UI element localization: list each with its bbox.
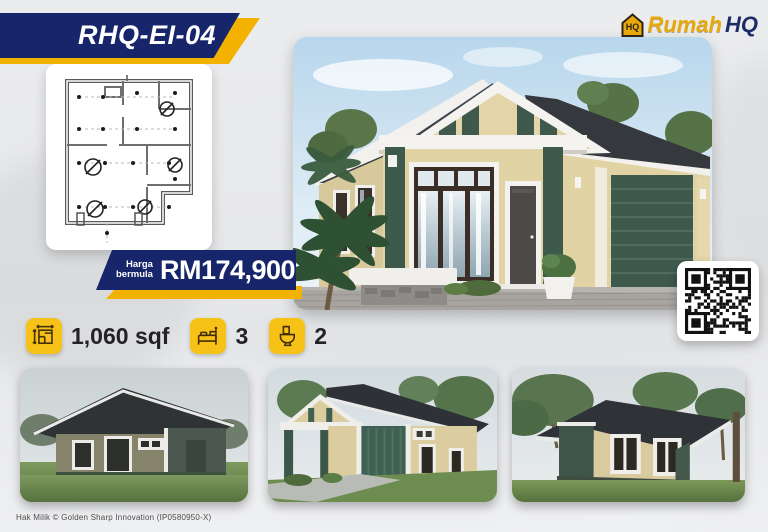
house-logo-icon: HQ — [621, 13, 644, 38]
flyer-canvas: RHQ-EI-04 HQ Rumah HQ — [0, 0, 768, 532]
brand-name-primary: Rumah — [647, 12, 722, 38]
thumbnail-front-left-view[interactable] — [268, 368, 497, 502]
bedroom-count: 3 — [235, 323, 248, 350]
specs-row: 1,060 sqf 3 — [26, 316, 327, 356]
bed-icon — [190, 318, 226, 354]
brand-name-secondary: HQ — [725, 12, 758, 38]
price-value: RM174,900 — [160, 255, 295, 286]
model-badge: RHQ-EI-04 — [0, 13, 240, 58]
thumbnail-rear-view[interactable] — [20, 368, 248, 502]
area-value: 1,060 sqf — [71, 323, 169, 350]
floor-plan-dimensions-icon — [26, 318, 62, 354]
svg-text:HQ: HQ — [626, 22, 640, 32]
qr-code-pattern — [685, 268, 751, 334]
toilet-icon — [269, 318, 305, 354]
qr-code[interactable] — [677, 261, 759, 341]
floor-plan-drawing — [49, 67, 209, 247]
copyright-text: Hak Milik © Golden Sharp Innovation (IP0… — [16, 513, 211, 522]
floor-plan-card — [46, 64, 212, 250]
price-label: Harga bermula — [116, 260, 153, 281]
price-badge-panel: Harga bermula RM174,900 — [96, 250, 296, 290]
main-house-photo[interactable] — [293, 37, 712, 310]
thumbnail-side-view[interactable] — [512, 368, 745, 502]
bathroom-count: 2 — [314, 323, 327, 350]
main-house-render — [293, 37, 712, 310]
price-badge: Harga bermula RM174,900 — [96, 250, 301, 302]
model-code: RHQ-EI-04 — [0, 20, 216, 51]
brand-logo: HQ Rumah HQ — [621, 12, 758, 38]
